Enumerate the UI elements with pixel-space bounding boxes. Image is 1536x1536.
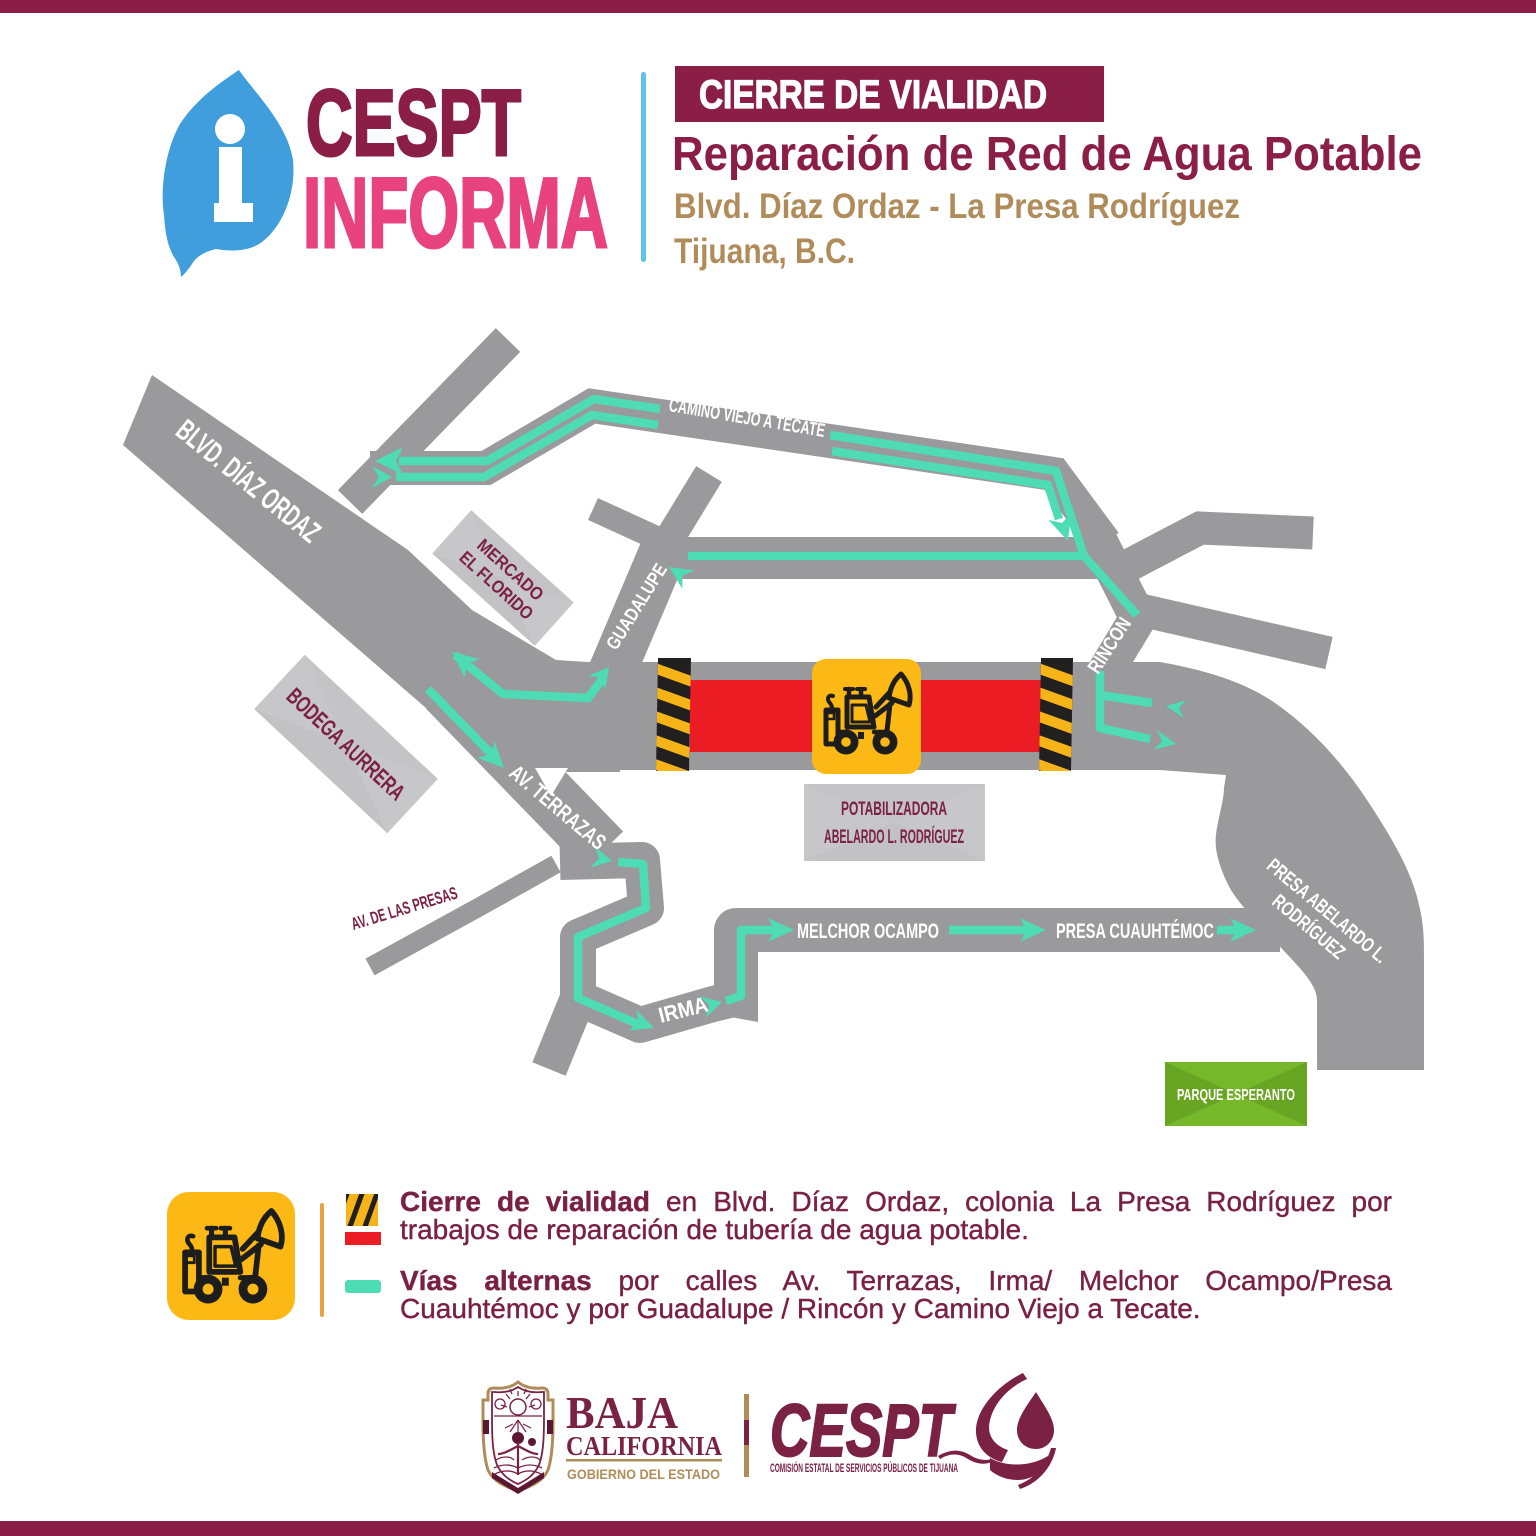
svg-text:MELCHOR OCAMPO: MELCHOR OCAMPO xyxy=(797,920,939,943)
svg-text:CALIFORNIA: CALIFORNIA xyxy=(566,1431,722,1461)
svg-text:PARQUE ESPERANTO: PARQUE ESPERANTO xyxy=(1177,1087,1295,1104)
svg-text:Reparación de Red de Agua Pota: Reparación de Red de Agua Potable xyxy=(672,128,1422,181)
svg-text:Tijuana, B.C.: Tijuana, B.C. xyxy=(674,232,855,271)
svg-text:GOBIERNO DEL ESTADO: GOBIERNO DEL ESTADO xyxy=(567,1466,720,1482)
svg-text:CIERRE DE VIALIDAD: CIERRE DE VIALIDAD xyxy=(699,73,1047,117)
svg-text:INFORMA: INFORMA xyxy=(303,157,608,268)
svg-text:POTABILIZADORA: POTABILIZADORA xyxy=(841,799,947,820)
svg-text:CESPT: CESPT xyxy=(770,1389,956,1472)
svg-text:COMISIÓN ESTATAL DE SERVICIOS: COMISIÓN ESTATAL DE SERVICIOS PÚBLICOS D… xyxy=(770,1460,958,1475)
svg-text:ABELARDO L. RODRÍGUEZ: ABELARDO L. RODRÍGUEZ xyxy=(824,826,964,848)
svg-text:Blvd. Díaz Ordaz - La Presa Ro: Blvd. Díaz Ordaz - La Presa Rodríguez xyxy=(674,187,1240,226)
svg-text:PRESA CUAUHTÉMOC: PRESA CUAUHTÉMOC xyxy=(1056,920,1214,943)
